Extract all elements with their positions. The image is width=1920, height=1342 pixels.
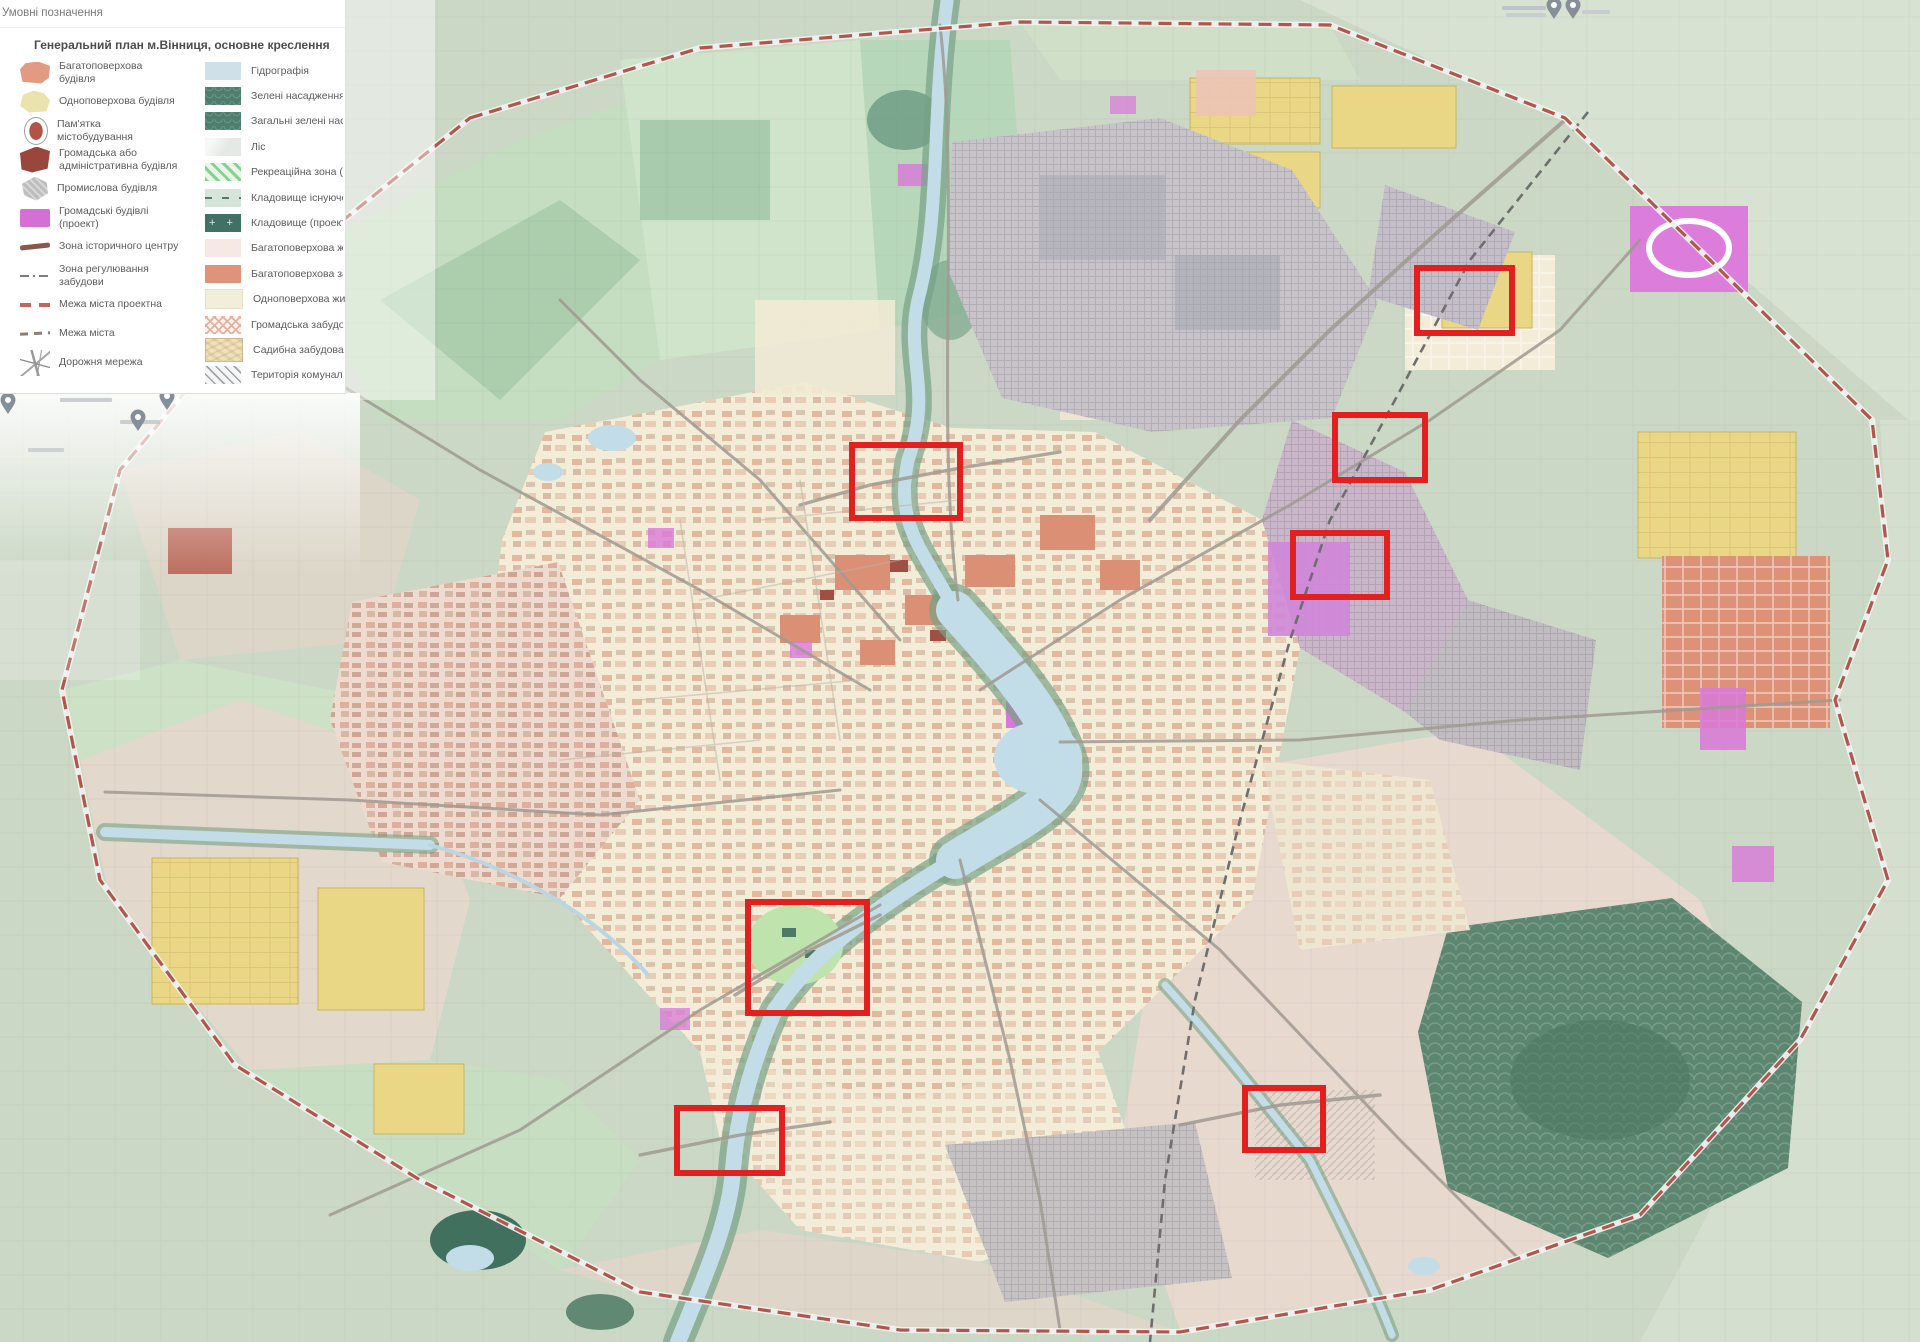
- legend-item-label: Межа міста проектна: [59, 298, 181, 310]
- legend-swatch-line-historic: [20, 242, 50, 250]
- legend-columns: Багатоповерхова будівляОдноповерхова буд…: [0, 56, 345, 388]
- legend-item: Зелені насадження (проект): [205, 83, 345, 108]
- legend-item: Межа міста проектна: [20, 290, 205, 319]
- legend-item: Багатоповерхова будівля: [20, 58, 205, 87]
- legend-swatch-line-dash-gray: [20, 331, 50, 336]
- legend-item-label: Садибна забудова (проект): [253, 344, 345, 356]
- legend-item-label: Межа міста: [59, 327, 181, 339]
- legend-item-label: Дорожня мережа: [59, 356, 181, 368]
- legend-swatch-bldg-salmon: [20, 62, 50, 84]
- legend-swatch-rect-cream: [205, 289, 243, 309]
- legend-item-label: Кладовище існуюче: [251, 192, 343, 204]
- legend-item: Загальні зелені насадження: [205, 109, 345, 134]
- legend-swatch-cemetery-existing: [205, 189, 241, 207]
- legend-item: Багатоповерхова житлова забудова: [205, 236, 345, 261]
- legend-column-left: Багатоповерхова будівляОдноповерхова буд…: [20, 58, 205, 388]
- legend-swatch-green-project: [205, 87, 241, 105]
- legend-item-label: Кладовище (проект): [251, 217, 343, 229]
- legend-item: Дорожня мережа: [20, 348, 205, 377]
- legend-item: Зона регулювання забудови: [20, 261, 205, 290]
- map-viewport: Умовні позначення Генеральний план м.Він…: [0, 0, 1920, 1342]
- legend-item-label: Громадська забудова: [251, 319, 343, 331]
- legend-column-right: ГідрографіяЗелені насадження (проект)Заг…: [205, 58, 345, 388]
- legend-swatch-cemetery-project: [205, 214, 241, 232]
- legend-item-label: Багатоповерхова житлова забудова: [251, 242, 343, 254]
- legend-swatch-bldg-maroon: [20, 147, 50, 173]
- legend-swatch-line-dash-red: [20, 303, 50, 307]
- legend-item: Гідрографія: [205, 58, 345, 83]
- legend-swatch-recreation: [205, 163, 241, 181]
- legend-item-label: Одноповерхова будівля: [59, 95, 181, 107]
- legend-swatch-water: [205, 62, 241, 80]
- legend-item-label: Гідрографія: [251, 65, 309, 77]
- legend-item-label: Пам'ятка містобудування: [57, 118, 179, 142]
- legend-item-label: Рекреаційна зона (1): [251, 166, 343, 178]
- legend-panel: Умовні позначення Генеральний план м.Він…: [0, 0, 346, 394]
- legend-item-label: Територія комунальна: [251, 369, 343, 381]
- legend-item: Громадські будівлі (проект): [20, 203, 205, 232]
- legend-item-label: Загальні зелені насадження: [251, 115, 343, 127]
- legend-item-label: Ліс: [251, 141, 265, 153]
- legend-item: Одноповерхова житлова забудова: [205, 287, 345, 312]
- legend-item: Громадська забудова: [205, 312, 345, 337]
- legend-swatch-bldg-industrial: [22, 177, 48, 201]
- legend-item-label: Зелені насадження (проект): [251, 90, 343, 102]
- legend-swatch-green-common: [205, 112, 241, 130]
- legend-divider: [0, 27, 345, 28]
- legend-item: Одноповерхова будівля: [20, 87, 205, 116]
- legend-swatch-rect-salmon: [205, 265, 241, 283]
- legend-item: Промислова будівля: [20, 174, 205, 203]
- legend-item-label: Громадські будівлі (проект): [59, 205, 181, 229]
- legend-swatch-hatch-communal: [205, 366, 241, 384]
- legend-item-label: Промислова будівля: [57, 182, 179, 194]
- legend-item: Кладовище існуюче: [205, 185, 345, 210]
- legend-item: Ліс: [205, 134, 345, 159]
- legend-swatch-line-dashdot: [20, 275, 50, 277]
- legend-item: Зона історичного центру: [20, 232, 205, 261]
- legend-item-label: Багатоповерхова будівля: [59, 60, 181, 84]
- legend-title: Генеральний план м.Вінниця, основне крес…: [34, 38, 337, 52]
- legend-item-label: Громадська або адміністративна будівля: [59, 147, 181, 171]
- legend-item: Рекреаційна зона (1): [205, 160, 345, 185]
- legend-item-label: Зона історичного центру: [59, 240, 181, 252]
- legend-item-label: Одноповерхова житлова забудова: [253, 293, 345, 305]
- legend-swatch-rect-magenta: [20, 209, 50, 227]
- legend-header-text: Умовні позначення: [0, 7, 103, 19]
- legend-swatch-monument: [24, 117, 48, 145]
- legend-item: Пам'ятка містобудування: [20, 116, 205, 145]
- legend-item: Кладовище (проект): [205, 210, 345, 235]
- legend-swatch-sadybna: [205, 338, 243, 362]
- legend-item-label: Зона регулювання забудови: [59, 263, 181, 287]
- legend-item: Садибна забудова (проект): [205, 337, 345, 362]
- legend-item: Громадська або адміністративна будівля: [20, 145, 205, 174]
- legend-item: Багатоповерхова забудова (проект): [205, 261, 345, 286]
- legend-item-label: Багатоповерхова забудова (проект): [251, 268, 343, 280]
- legend-swatch-roads: [20, 350, 50, 376]
- legend-swatch-forest: [205, 138, 241, 156]
- legend-item: Межа міста: [20, 319, 205, 348]
- legend-swatch-rect-palepink: [205, 239, 241, 257]
- legend-item: Територія комунальна: [205, 363, 345, 388]
- legend-header: Умовні позначення: [0, 0, 345, 19]
- legend-swatch-crosshatch-pink: [205, 316, 241, 334]
- legend-swatch-bldg-cream: [20, 91, 50, 113]
